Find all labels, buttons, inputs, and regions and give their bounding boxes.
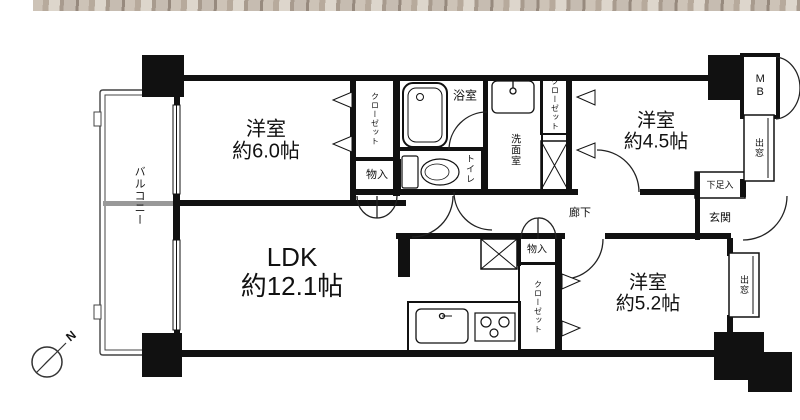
stove-icon (475, 313, 515, 341)
pillar-top-left (142, 55, 184, 97)
kitchen-sink-icon (416, 309, 468, 343)
bedroom45-door-arc (597, 150, 639, 192)
closet-label-bedroom52: クローゼット (533, 280, 542, 334)
bedroom52-door-arc (565, 239, 603, 279)
bathroom-label: 浴室 (453, 89, 477, 102)
bedroom-5-2-name: 洋室 (629, 273, 667, 294)
hallway-label: 廊下 (569, 207, 591, 219)
ldk-name: LDK (267, 243, 318, 272)
closet-label-bedroom45: クローゼット (550, 77, 559, 131)
bathtub-icon (403, 83, 447, 147)
bedroom-4-5-name: 洋室 (637, 111, 675, 132)
toilet-door-arc (454, 192, 492, 230)
bedroom-6-size: 約6.0帖 (232, 141, 300, 163)
compass-icon: N (32, 328, 79, 377)
pillar-bottom-left (142, 333, 182, 377)
ldk-size: 約12.1帖 (241, 272, 344, 301)
hallway-door-arc (412, 196, 453, 237)
washroom-label: 洗面室 (508, 134, 519, 167)
closet-label-bedroom6: クローゼット (370, 92, 379, 146)
storage-label-center: 物入 (527, 244, 547, 255)
bedroom-4-5-size: 約4.5帖 (624, 132, 688, 153)
room-label-bedroom-6: 洋室 約6.0帖 (232, 119, 300, 164)
washbasin-icon (492, 81, 534, 113)
bay-window-label-top: 出窓 (754, 138, 764, 158)
room-label-ldk: LDK 約12.1帖 (241, 243, 344, 301)
room-label-bedroom-5-2: 洋室 約5.2帖 (616, 273, 680, 316)
pillar-bottom-right-ext (748, 352, 792, 392)
entrance-door-arc (743, 196, 787, 240)
room-label-bedroom-4-5: 洋室 約4.5帖 (624, 111, 688, 154)
meter-box-label: MB (754, 73, 766, 99)
shoe-cabinet-label: 下足入 (706, 180, 733, 190)
floorplan-screenshot: N 洋室 約6.0帖 洋室 約4.5帖 洋室 約5.2帖 LDK 約12.1帖 … (0, 0, 800, 420)
compass-north-label: N (63, 328, 79, 344)
toilet-icon (402, 156, 459, 188)
crossed-space-marks (481, 141, 568, 269)
bathroom-door-arc (449, 112, 487, 150)
bay-window-label-bottom: 出窓 (739, 275, 749, 295)
entrance-label: 玄関 (709, 212, 731, 224)
bedroom-5-2-size: 約5.2帖 (616, 294, 680, 315)
bedroom-6-name: 洋室 (246, 119, 286, 141)
bay-windows (729, 115, 774, 317)
storage-top-door-arcs (357, 196, 397, 218)
toilet-label: トイレ (465, 154, 475, 184)
balcony-label: バルコニー (133, 166, 145, 226)
storage-label-top: 物入 (366, 169, 388, 181)
floorplan-drawing: N (0, 0, 800, 420)
